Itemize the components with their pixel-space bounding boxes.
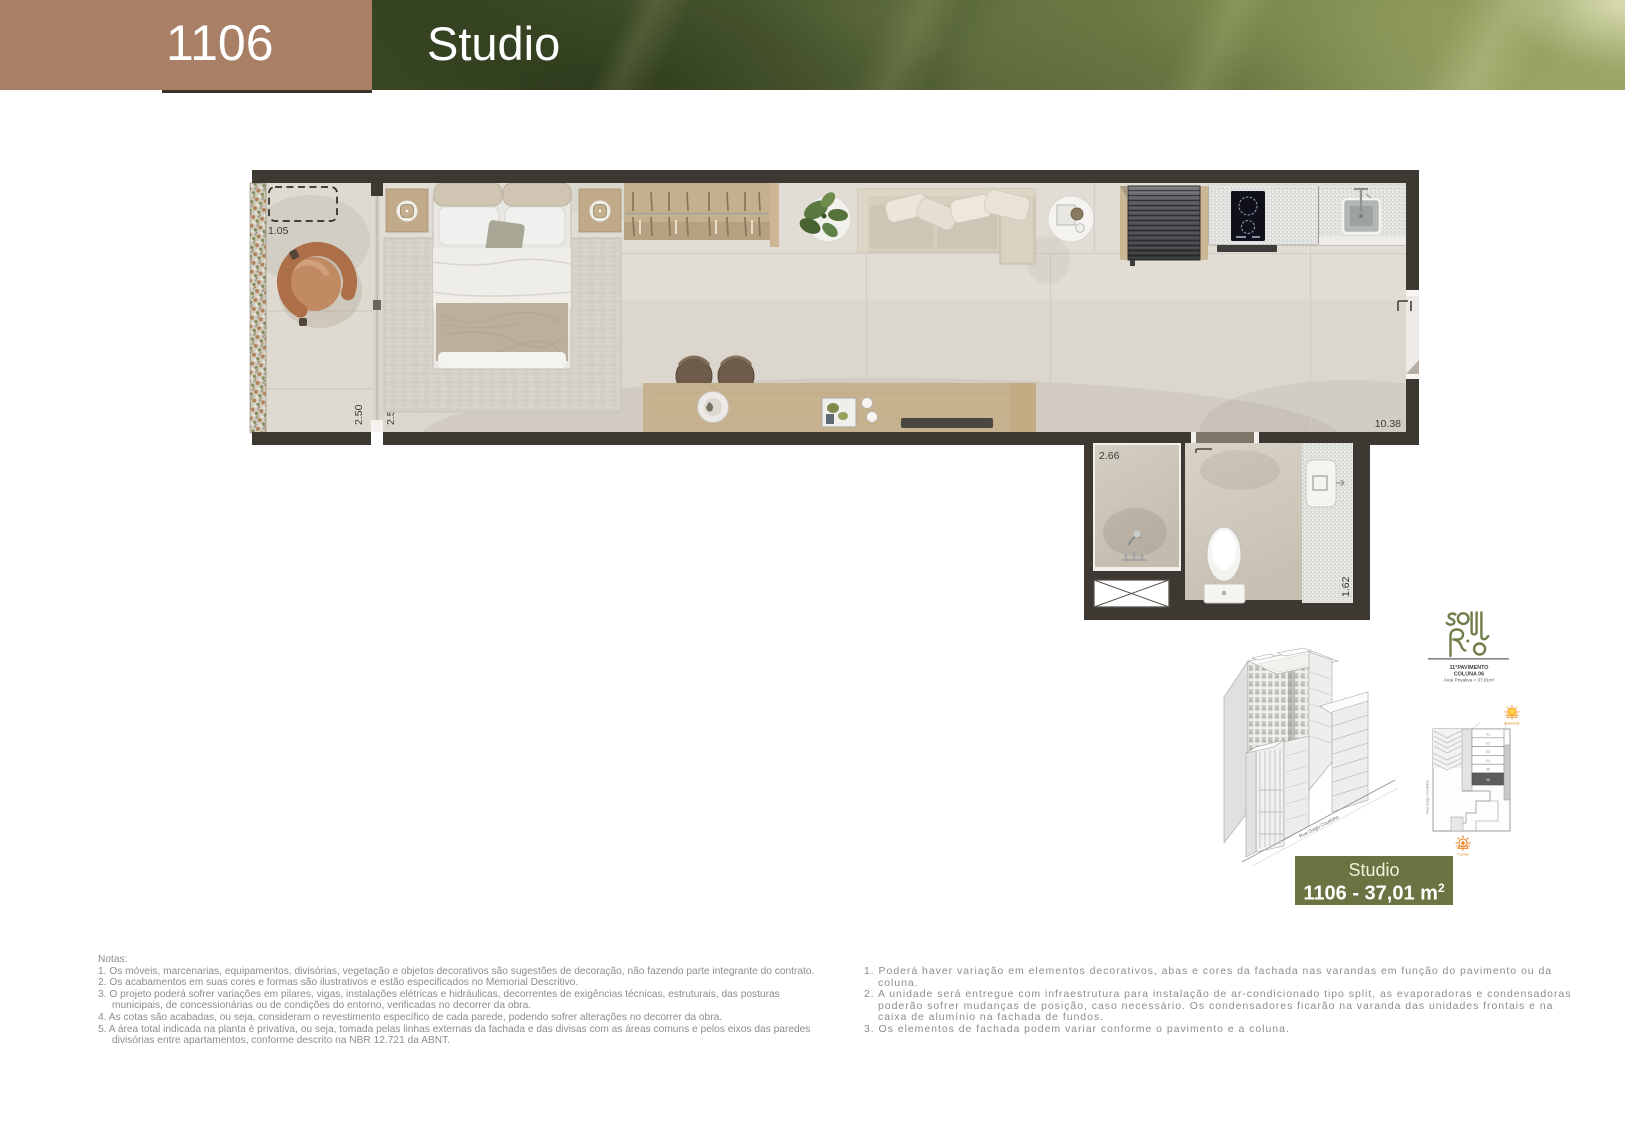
svg-text:2.66: 2.66 [1099,450,1120,462]
svg-text:Rua Gago Coutinho: Rua Gago Coutinho [1426,780,1430,814]
svg-text:Nascente: Nascente [1504,722,1519,726]
svg-text:02: 02 [1486,741,1490,745]
svg-text:2.50: 2.50 [353,404,365,425]
svg-text:03: 03 [1486,750,1490,754]
svg-text:Poente: Poente [1457,853,1468,857]
svg-text:11°PAVIMENTO: 11°PAVIMENTO [1449,665,1488,671]
svg-text:01: 01 [1486,733,1490,737]
svg-text:1.62: 1.62 [1340,576,1352,597]
svg-text:04: 04 [1486,759,1490,763]
svg-text:Área Privativa = 37,01m²: Área Privativa = 37,01m² [1444,677,1495,683]
svg-text:06: 06 [1486,778,1490,782]
svg-text:1.05: 1.05 [268,225,289,237]
svg-text:05: 05 [1486,768,1490,772]
svg-text:10.38: 10.38 [1375,418,1401,430]
